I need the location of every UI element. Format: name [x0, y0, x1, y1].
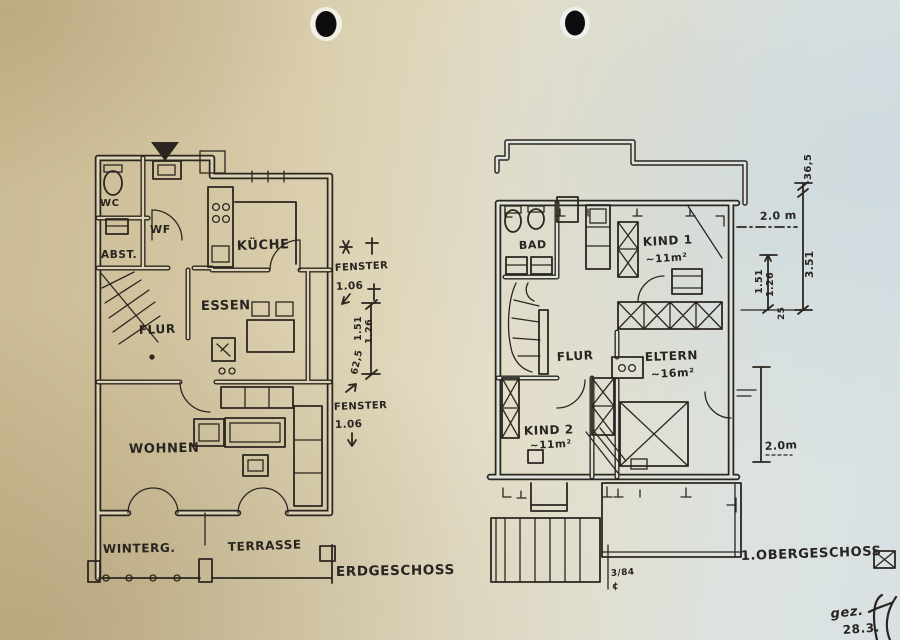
- dim-1-26-left: 1.26: [364, 319, 375, 344]
- door-arc-living: [180, 382, 210, 412]
- area-label-kind2: ~11m²: [530, 438, 573, 452]
- room-label-wohnen: WOHNEN: [129, 441, 200, 457]
- dimension-annotations-left: FENSTER 1.06 1.51 1.26 62,5 FENSTER 1.06: [334, 238, 389, 446]
- sloped-ceiling-line: [688, 206, 722, 258]
- window-symbol-star: [340, 241, 352, 253]
- window-symbol-cross-2: [368, 284, 380, 300]
- arrow-down-left: [342, 294, 350, 304]
- dim-1-26-right: 1.26: [765, 272, 776, 297]
- dim-line-3-51: 36,5 3.51: [795, 154, 816, 314]
- bed-eltern: [620, 402, 688, 469]
- chimney-symbol: [151, 142, 181, 179]
- window-mark-right-wall: [737, 390, 756, 396]
- dim-2-0-top-text: 2.0 m: [760, 209, 797, 223]
- room-label-essen: ESSEN: [201, 298, 251, 314]
- fenster-value-bottom: 1.06: [335, 418, 363, 431]
- room-label-wf: WF: [150, 223, 171, 236]
- wardrobe-kind2-right: [592, 378, 614, 435]
- room-label-eltern: ELTERN: [645, 348, 699, 364]
- hole-punch-left: [310, 7, 342, 41]
- plan-mark: 3/84: [611, 567, 635, 579]
- arrow-up-right: [346, 384, 356, 392]
- floor-title-erdgeschoss: ERDGESCHOSS: [336, 562, 455, 580]
- wardrobe-kind2-left: [502, 378, 519, 438]
- fenster-label-top: FENSTER: [335, 260, 389, 274]
- signature-gez: gez.: [830, 604, 864, 622]
- fenster-label-bottom: FENSTER: [334, 400, 388, 413]
- room-label-flur-eg: FLUR: [139, 322, 176, 337]
- area-label-kind1: ~11m²: [645, 251, 688, 266]
- desk-kind1: [672, 269, 702, 294]
- door-arc-eltern: [705, 392, 731, 418]
- kitchen-fixtures: [208, 171, 300, 270]
- floor-plan-drawing: WC ABST. WF KÜCHE ESSEN FLUR WOHNEN WINT…: [0, 0, 900, 640]
- arrow-down: [348, 433, 356, 446]
- staircase-ground-floor: [100, 272, 160, 360]
- dim-1-51-right: 1.51: [754, 269, 765, 294]
- room-label-kueche: KÜCHE: [237, 236, 290, 254]
- room-label-terrasse: TERRASSE: [228, 537, 302, 554]
- wardrobe-eltern-row: [618, 302, 722, 329]
- floor-title-obergeschoss: 1.OBERGESCHOSS: [741, 544, 882, 564]
- dim-1-51-left: 1.51: [353, 316, 364, 341]
- room-label-kind1: KIND 1: [642, 232, 693, 249]
- fenster-value-top: 1.06: [336, 280, 364, 293]
- staircase-upper-floor: [509, 283, 548, 374]
- window-symbol-cross: [366, 238, 378, 254]
- double-door-arcs: [128, 488, 288, 513]
- radiator-box: [612, 357, 643, 378]
- room-label-flur-og: FLUR: [556, 348, 593, 364]
- room-label-abst: ABST.: [101, 249, 137, 261]
- room-label-wc: WC: [100, 198, 120, 209]
- vertical-dimension-line-left-plan: 1.51 1.26 62,5: [349, 300, 380, 379]
- door-arc-kind2: [557, 380, 585, 408]
- signature-block: gez. 28.3.: [830, 595, 896, 640]
- room-label-bad: BAD: [519, 238, 547, 252]
- dim-62-5-left: 62,5: [349, 349, 365, 376]
- dimension-annotations-right: 36,5 3.51 1.51 1.26 25 2.0 m 2.0m: [737, 154, 816, 462]
- plan-mark-symbol: ¢: [612, 581, 619, 592]
- upper-floor-plan: BAD KIND 1 ~11m² FLUR ELTERN ~16m² KIND …: [490, 142, 895, 592]
- wardrobe-kind1: [618, 222, 638, 277]
- door-arc-kind1: [638, 276, 664, 302]
- crossed-box-mark: [874, 551, 895, 568]
- hall-cabinet: [586, 205, 610, 269]
- ground-floor-plan: WC ABST. WF KÜCHE ESSEN FLUR WOHNEN WINT…: [88, 142, 455, 583]
- hole-punch-right: [560, 7, 590, 39]
- dim-3-51: 3.51: [804, 250, 816, 278]
- corner-marks: [503, 487, 736, 512]
- area-label-eltern: ~16m²: [650, 366, 694, 381]
- dim-2-0-side: 2.0m: [753, 367, 798, 462]
- room-label-wintergarten: WINTERG.: [103, 541, 176, 556]
- dim-36-5: 36,5: [803, 154, 814, 180]
- dim-2-0-side-text: 2.0m: [764, 438, 797, 453]
- scanned-floor-plan-sheet: WC ABST. WF KÜCHE ESSEN FLUR WOHNEN WINT…: [0, 0, 900, 640]
- dim-25: 25: [777, 307, 787, 320]
- dim-2-0-top: 2.0 m: [737, 209, 797, 227]
- room-label-kind2: KIND 2: [524, 422, 574, 438]
